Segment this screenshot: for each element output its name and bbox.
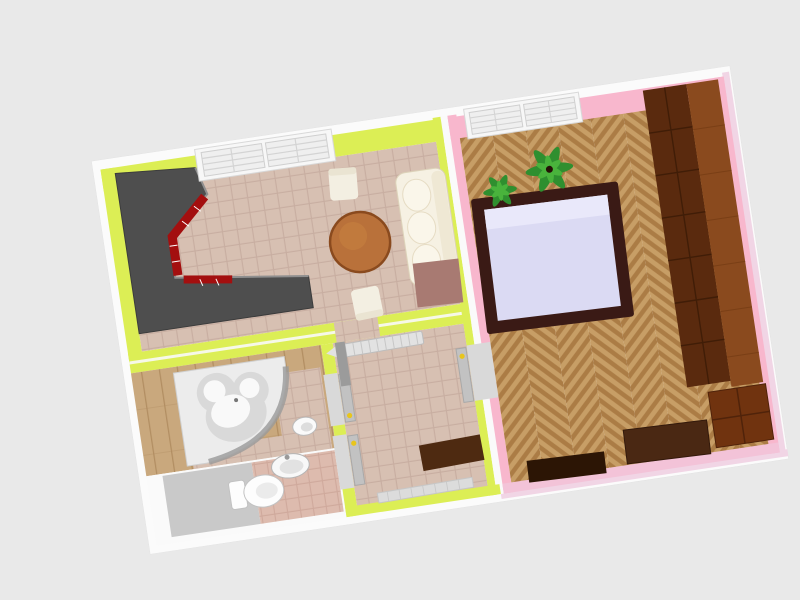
rug[interactable] (413, 259, 464, 308)
render-canvas (0, 0, 800, 600)
floor-plan (91, 65, 789, 554)
dresser[interactable] (708, 384, 774, 448)
dining-chair-north[interactable] (328, 167, 358, 201)
